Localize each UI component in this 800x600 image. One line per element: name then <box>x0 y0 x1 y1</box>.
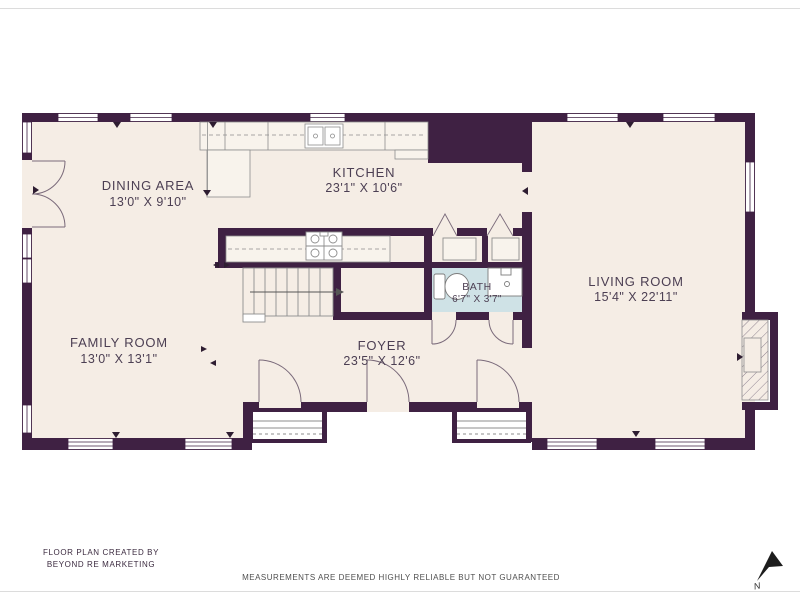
credit-line-1: FLOOR PLAN CREATED BY <box>43 548 159 557</box>
window <box>68 439 113 450</box>
porch-steps-left <box>248 408 327 443</box>
kitchen-label: KITCHEN <box>333 165 396 180</box>
north-arrow-icon <box>757 551 783 581</box>
window <box>23 234 32 258</box>
credit-line-2: BEYOND RE MARKETING <box>47 560 155 569</box>
vanity-sink <box>488 268 522 296</box>
window <box>23 259 32 283</box>
foyer-dims: 23'5" X 12'6" <box>343 354 420 368</box>
window <box>567 114 618 122</box>
window <box>23 122 32 153</box>
family-room-label: FAMILY ROOM <box>70 335 168 350</box>
window <box>663 114 715 122</box>
window <box>655 439 705 450</box>
kitchen-sink <box>305 124 343 148</box>
stove <box>306 232 342 260</box>
kitchen-dims: 23'1" X 10'6" <box>325 181 402 195</box>
window <box>130 114 172 122</box>
family-room-dims: 13'0" X 13'1" <box>80 352 157 366</box>
porch-steps-right <box>452 408 531 443</box>
dining-area-dims: 13'0" X 9'10" <box>109 195 186 209</box>
footer: FLOOR PLAN CREATED BY BEYOND RE MARKETIN… <box>43 548 560 582</box>
compass: N <box>753 551 783 592</box>
window <box>547 439 597 450</box>
window <box>58 114 98 122</box>
staircase <box>243 268 344 322</box>
window <box>310 114 345 122</box>
pantry-block <box>428 122 532 163</box>
floor-plan-image: DINING AREA 13'0" X 9'10" KITCHEN 23'1" … <box>0 0 800 600</box>
floor-plan-page: DINING AREA 13'0" X 9'10" KITCHEN 23'1" … <box>0 0 800 600</box>
fireplace <box>742 320 768 400</box>
bath-dims: 6'7" X 3'7" <box>452 294 502 305</box>
dining-area-label: DINING AREA <box>102 178 195 193</box>
window <box>746 162 755 212</box>
north-label: N <box>753 580 762 591</box>
foyer-label: FOYER <box>358 338 407 353</box>
bath-label: BATH <box>462 281 492 293</box>
living-room-dims: 15'4" X 22'11" <box>594 290 678 304</box>
window <box>185 439 232 450</box>
window <box>23 405 32 433</box>
living-room-label: LIVING ROOM <box>588 274 683 289</box>
disclaimer-text: MEASUREMENTS ARE DEEMED HIGHLY RELIABLE … <box>242 573 560 582</box>
